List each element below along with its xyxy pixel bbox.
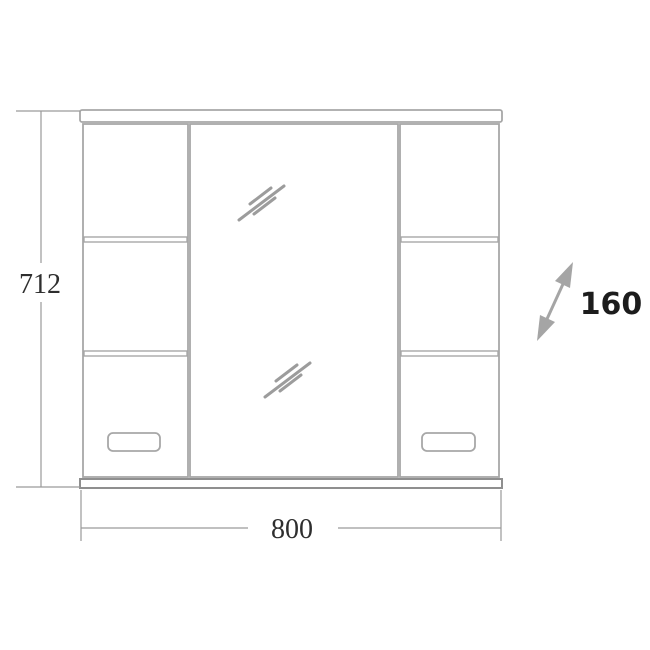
depth-indicator: [537, 262, 573, 341]
left-shelf-lower: [84, 351, 187, 356]
width-dimension-label: 800: [271, 514, 313, 545]
mirror-panel: [190, 124, 398, 477]
left-shelf-upper: [84, 237, 187, 242]
depth-arrow-shaft: [547, 284, 563, 319]
depth-arrow-head-down-icon: [537, 315, 555, 341]
cabinet-top-panel: [80, 110, 502, 122]
right-column-panel: [400, 124, 499, 477]
right-shelf-upper: [401, 237, 498, 242]
left-door-handle: [108, 433, 160, 451]
drawing-canvas: 712 800 160: [0, 0, 650, 650]
height-dimension-label: 712: [19, 269, 61, 300]
cabinet-outline: [80, 110, 502, 477]
cabinet-bottom-panel: [80, 479, 502, 488]
left-column-panel: [83, 124, 188, 477]
depth-arrow-head-up-icon: [555, 262, 573, 288]
right-shelf-lower: [401, 351, 498, 356]
depth-dimension-label: 160: [580, 287, 643, 322]
cabinet-elevation-drawing: 712 800 160: [0, 0, 650, 650]
right-door-handle: [422, 433, 475, 451]
